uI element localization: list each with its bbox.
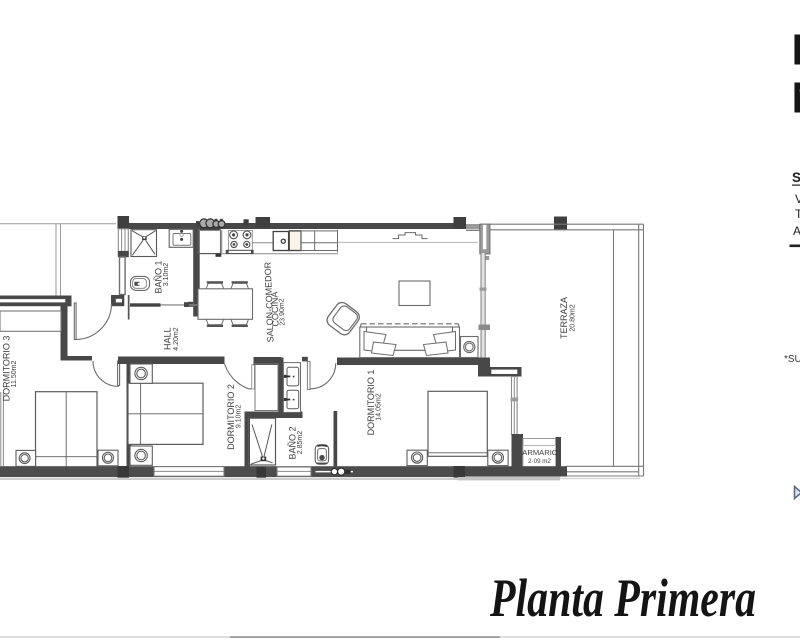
svg-text:14.05m2: 14.05m2 <box>375 393 382 420</box>
svg-text:BAÑO 1: BAÑO 1 <box>153 260 163 293</box>
svg-text:TERRAZA: TERRAZA <box>559 297 569 339</box>
svg-text:A: A <box>793 224 800 238</box>
svg-text:4.20m2: 4.20m2 <box>173 327 180 350</box>
svg-text:Planta Primera: Planta Primera <box>489 568 756 628</box>
svg-text:SA: SA <box>792 170 800 185</box>
svg-text:DORMITORIO 1: DORMITORIO 1 <box>366 370 376 436</box>
svg-text:V: V <box>795 192 800 206</box>
svg-text:ARMARIO: ARMARIO <box>522 448 558 457</box>
svg-text:HALL: HALL <box>163 327 173 350</box>
svg-text:T: T <box>795 207 800 221</box>
svg-text:BL: BL <box>792 26 800 75</box>
svg-text:3.10m2: 3.10m2 <box>163 263 170 286</box>
svg-text:23.90m2: 23.90m2 <box>279 298 287 326</box>
svg-text:2.85m2: 2.85m2 <box>297 431 304 454</box>
svg-text:NE: NE <box>792 74 800 123</box>
svg-text:11.50m2: 11.50m2 <box>11 361 18 388</box>
svg-text:*SU: *SU <box>784 354 800 365</box>
svg-text:2·09 m2: 2·09 m2 <box>528 458 551 465</box>
svg-text:9.10m2: 9.10m2 <box>236 405 243 428</box>
svg-text:20.80m2: 20.80m2 <box>569 304 576 331</box>
svg-text:DORMITORIO 2: DORMITORIO 2 <box>226 384 236 450</box>
